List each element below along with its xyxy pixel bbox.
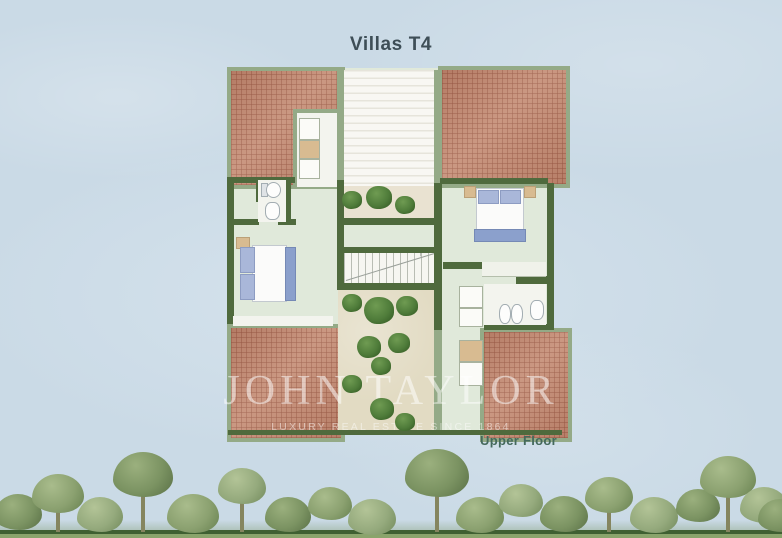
pillow-icon (478, 190, 499, 204)
tree-icon (405, 449, 469, 497)
floor-plan-scene: Villas T4 ↑ (0, 0, 782, 538)
pergola-wall-right (434, 70, 441, 185)
tree-icon (113, 452, 173, 497)
tree-icon (630, 497, 678, 533)
toilet-icon (266, 182, 281, 198)
pillow-icon (240, 247, 255, 273)
sink-icon (511, 304, 523, 324)
toilet-icon (530, 300, 544, 320)
tree-icon (348, 499, 396, 535)
watermark-tagline: LUXURY REAL ESTATE SINCE 1864 (0, 421, 782, 433)
tree-icon (218, 468, 266, 504)
balcony-strip (233, 316, 333, 326)
tree-trunk-icon (141, 491, 145, 532)
nightstand-icon (464, 186, 476, 198)
shrub-icon (370, 398, 394, 420)
pillow-icon (240, 274, 255, 300)
shelf-icon (459, 286, 483, 308)
shrub-icon (342, 191, 362, 209)
tree-trunk-icon (435, 491, 439, 532)
tree-icon (167, 494, 219, 533)
tree-icon (265, 497, 311, 532)
bed-icon (252, 245, 287, 302)
appliance-icon (299, 118, 320, 140)
shelf-icon (459, 340, 483, 362)
shrub-icon (366, 186, 392, 209)
floor-label: Upper Floor (437, 433, 557, 448)
closet (482, 262, 546, 277)
bed-bench-icon (285, 247, 296, 301)
shrub-icon (342, 375, 362, 393)
pergola-wall-left (337, 70, 344, 182)
grass-strip (0, 534, 782, 538)
appliance-icon (299, 159, 320, 179)
wall-segment (337, 218, 441, 225)
tree-icon (499, 484, 543, 517)
tree-icon (540, 496, 588, 532)
tree-icon (32, 474, 84, 513)
tree-icon (456, 497, 504, 533)
roof-top-right (438, 66, 570, 188)
sink-icon (499, 304, 511, 324)
tree-icon (585, 477, 633, 513)
wall-segment (434, 183, 442, 290)
wall-segment (337, 247, 441, 253)
wall-segment (227, 178, 234, 324)
shrub-icon (395, 413, 415, 431)
wall-segment (231, 219, 259, 225)
sink-icon (265, 202, 280, 220)
page-title: Villas T4 (0, 34, 782, 56)
wall-segment (440, 178, 548, 184)
shrub-icon (342, 294, 362, 312)
shrub-icon (371, 357, 391, 375)
tree-icon (308, 487, 352, 520)
shrub-icon (396, 296, 418, 316)
tree-icon (77, 497, 123, 532)
shrub-icon (395, 196, 415, 214)
shrub-icon (388, 333, 410, 353)
wall-segment (547, 183, 554, 330)
wall-segment (434, 290, 442, 330)
shrub-icon (364, 297, 394, 324)
cabinet-icon (299, 140, 320, 159)
wall-segment (443, 262, 482, 269)
pillow-icon (500, 190, 521, 204)
shelf-icon (459, 308, 483, 327)
tree-trunk-icon (726, 492, 730, 532)
bed-bench-icon (474, 229, 526, 242)
wall-segment (337, 283, 441, 290)
shrub-icon (357, 336, 381, 358)
pergola-roof (344, 70, 434, 186)
nightstand-icon (524, 186, 536, 198)
